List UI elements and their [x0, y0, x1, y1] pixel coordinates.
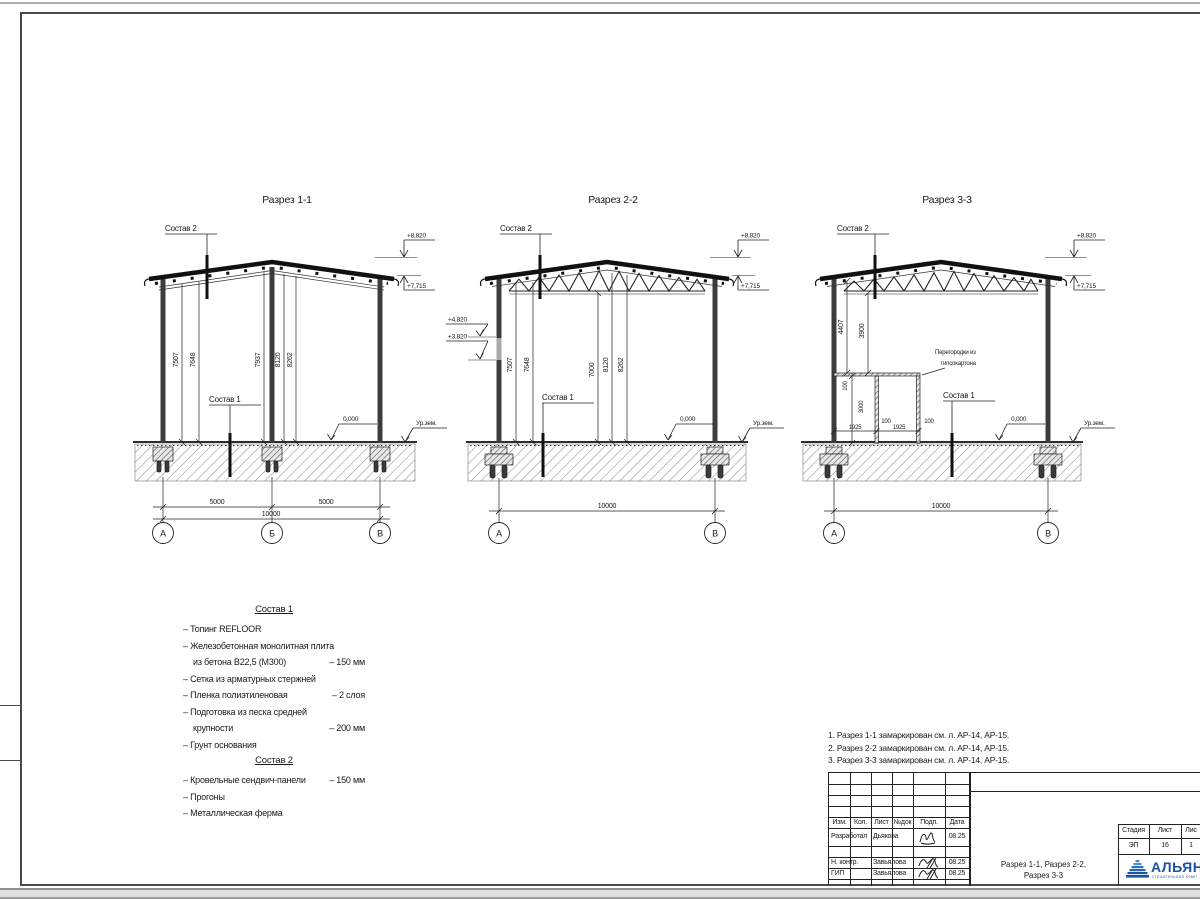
company-name: АЛЬЯН: [1151, 859, 1200, 875]
dim-7000: 7000: [589, 362, 596, 377]
floor-level: 0,000: [1011, 416, 1027, 423]
dim-8120: 8120: [603, 357, 610, 372]
dim-7648: 7648: [190, 352, 197, 367]
floor-level-mark: [665, 424, 715, 440]
note-3: 3. Разрез 3-3 замаркирован см. л. АР-14,…: [828, 754, 1009, 767]
svg-text:гипсокартона: гипсокартона: [941, 361, 977, 367]
dim-7507: 7507: [507, 357, 514, 372]
col-ndok: №док: [892, 819, 913, 826]
ground-level-mark: [739, 428, 785, 442]
window-bottom-bar[interactable]: [0, 890, 1200, 897]
axis-a: А: [831, 529, 837, 539]
axis-b: Б: [269, 529, 275, 539]
span-total: 10000: [932, 503, 951, 510]
section-3-title: Разрез 3-3: [922, 194, 972, 206]
dim-3900: 3900: [859, 323, 866, 338]
sheet-label: Лист: [1149, 827, 1181, 834]
note-1: 1. Разрез 1-1 замаркирован см. л. АР-14,…: [828, 729, 1009, 742]
svg-text:Состав 2: Состав 2: [837, 224, 869, 233]
floor-level-mark: [996, 424, 1046, 440]
sheets-label: Лис: [1181, 827, 1200, 834]
dim-chains: [489, 478, 725, 522]
col-izm: Изм.: [829, 819, 850, 826]
title-block: Изм. Кол. Лист №док Подп. Дата Разработа…: [828, 772, 1200, 885]
section-2-title: Разрез 2-2: [588, 194, 638, 206]
name-developer: Дьякова: [873, 833, 898, 840]
elev-ridge-mark: [1045, 240, 1105, 258]
axis-v: В: [712, 529, 718, 539]
part-dim-100a: 100: [881, 419, 891, 425]
axis-bubbles: [489, 523, 726, 544]
doc-title-line2: Разрез 3-3: [969, 871, 1118, 880]
role-ncontrol: Н. контр.: [831, 859, 858, 866]
part-dim-1925a: 1925: [849, 425, 862, 431]
company-subtitle: строительная комп: [1152, 874, 1197, 879]
signature-developer-icon: [917, 830, 943, 846]
elev-ridge: +8,820: [741, 233, 760, 240]
legend-item: – Прогоны: [183, 789, 365, 806]
legend-item: – Подготовка из песка средней: [183, 704, 365, 721]
axis-v: В: [1045, 529, 1051, 539]
partition-note: Перегородки из гипсокартона: [922, 350, 977, 375]
part-dim-1925b: 1925: [893, 425, 906, 431]
role-developer: Разработал: [831, 833, 867, 840]
truss: [844, 271, 1038, 294]
dim-7937: 7937: [255, 352, 262, 367]
sostav2-title: Состав 2: [183, 755, 365, 766]
svg-text:Состав 2: Состав 2: [165, 224, 197, 233]
date-gip: 08.25: [945, 870, 969, 877]
dim-7507: 7507: [173, 352, 180, 367]
floor-level: 0,000: [343, 416, 359, 423]
dim-8262: 8262: [618, 357, 625, 372]
col-kol: Кол.: [850, 819, 871, 826]
sheet-value: 16: [1149, 842, 1181, 849]
part-dim-100b: 100: [924, 419, 934, 425]
svg-text:Состав 2: Состав 2: [500, 224, 532, 233]
legend-item: – Пленка полиэтиленовая– 2 слоя: [183, 687, 365, 704]
legend-item: – Железобетонная монолитная плита: [183, 638, 365, 655]
section-2-2-drawing: Разрез 2-2: [440, 185, 795, 560]
floor-level: 0,000: [680, 416, 696, 423]
section-3-3-drawing: Разрез 3-3: [795, 185, 1140, 560]
section-1-1-drawing: Разрез 1-1: [125, 185, 465, 560]
window-top-edge: [0, 2, 1200, 4]
name-gip: Завьялова: [873, 870, 906, 877]
sheet-notes: 1. Разрез 1-1 замаркирован см. л. АР-14,…: [828, 729, 1009, 767]
axis-a: А: [496, 529, 502, 539]
svg-text:Состав 1: Состав 1: [209, 395, 241, 404]
part-dim-3000: 3000: [859, 400, 865, 413]
signature-gip-icon: [917, 868, 943, 880]
vertical-dims: [844, 278, 871, 376]
drawing-sheet: Разрез 1-1: [0, 0, 1200, 900]
svg-text:Состав 1: Состав 1: [542, 393, 574, 402]
frame-margin-tick-2: [0, 760, 20, 761]
floor-level-mark: [328, 424, 378, 440]
span-b-v: 5000: [319, 499, 334, 506]
name-ncontrol: Завьялова: [873, 859, 906, 866]
window-band: [497, 338, 502, 360]
dim-chains: [824, 478, 1058, 522]
col-podp: Подп.: [913, 819, 945, 826]
elev-eave: +7,715: [407, 283, 426, 290]
axis-bubbles: [824, 523, 1059, 544]
date-developer: 08.25: [945, 833, 969, 840]
dim-4407: 4407: [838, 319, 845, 334]
window-bottom-bar-line2: [0, 897, 1200, 899]
svg-text:Состав 1: Состав 1: [943, 391, 975, 400]
ground-level: Ур.зем.: [1084, 420, 1105, 427]
ground-level: Ур.зем.: [753, 420, 774, 427]
span-total: 10000: [598, 503, 617, 510]
elev-ridge: +8,820: [1077, 233, 1096, 240]
span-a-b: 5000: [210, 499, 225, 506]
ground-level: Ур.зем.: [416, 420, 437, 427]
col-list: Лист: [871, 819, 892, 826]
section-1-title: Разрез 1-1: [262, 194, 312, 206]
dim-7648: 7648: [524, 357, 531, 372]
doc-title-line1: Разрез 1-1, Разрез 2-2,: [969, 860, 1118, 869]
floor-composition-legend: Состав 1 – Топинг REFLOOR – Железобетонн…: [183, 604, 365, 822]
elev-ridge-mark: [710, 240, 769, 258]
note-2: 2. Разрез 2-2 замаркирован см. л. АР-14,…: [828, 742, 1009, 755]
frame-top: [20, 12, 1200, 14]
elev-window-bottom-mark: [446, 341, 496, 360]
svg-text:Перегородки из: Перегородки из: [935, 350, 976, 356]
col-data: Дата: [945, 819, 969, 826]
truss: [509, 271, 705, 294]
legend-item: – Грунт основания: [183, 737, 365, 754]
elev-ridge: +8,820: [407, 233, 426, 240]
dim-8120: 8120: [275, 352, 282, 367]
dim-8262: 8262: [287, 352, 294, 367]
elev-window-bottom: +3,820: [448, 334, 467, 341]
roof: [481, 262, 734, 287]
legend-item: – Сетка из арматурных стержней: [183, 671, 365, 688]
frame-left: [20, 12, 22, 885]
stage-value: ЭП: [1118, 842, 1149, 849]
elev-window-top: +4,820: [448, 317, 467, 324]
company-logo-icon: [1126, 858, 1149, 882]
date-ncontrol: 08.25: [945, 859, 969, 866]
legend-item: – Кровельные сендвич-панели– 150 мм: [183, 772, 365, 789]
legend-item: – Металлическая ферма: [183, 805, 365, 822]
sheets-value: 1: [1181, 842, 1200, 849]
legend-item: из бетона В22,5 (М300)– 150 мм: [183, 654, 365, 671]
elev-eave: +7,715: [1077, 283, 1096, 290]
legend-item: – Топинг REFLOOR: [183, 621, 365, 638]
elev-ridge-mark: [375, 240, 435, 258]
role-gip: ГИП: [831, 870, 844, 877]
sostav1-title: Состав 1: [183, 604, 365, 615]
ground-level-mark: [1070, 428, 1116, 442]
legend-item: крупности– 200 мм: [183, 720, 365, 737]
axis-v: В: [377, 529, 383, 539]
stage-label: Стадия: [1118, 827, 1149, 834]
part-dim-100v: 100: [843, 380, 849, 390]
elev-eave: +7,715: [741, 283, 760, 290]
span-total: 10000: [262, 511, 281, 518]
axis-a: А: [160, 529, 166, 539]
frame-margin-tick-1: [0, 705, 20, 706]
